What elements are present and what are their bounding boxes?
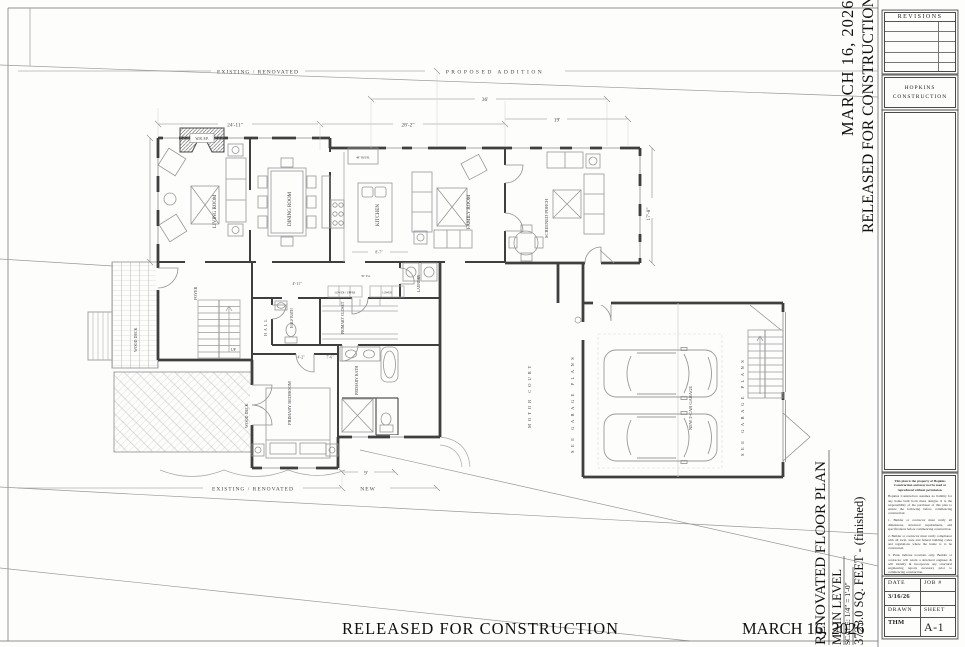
dim-new: 9'	[364, 471, 368, 477]
revisions-title: REVISIONS	[885, 13, 955, 22]
wood-deck-upper	[88, 262, 158, 368]
sheet-label: SHEET	[921, 606, 955, 617]
room-closet: PRIMARY CLOSET	[341, 301, 345, 334]
room-living: LIVING ROOM	[213, 194, 218, 228]
note-paragraph: Hopkins Construction assumes no liabilit…	[888, 494, 952, 515]
zone-new: NEW	[360, 487, 376, 493]
general-notes: This plan is the property of Hopkins Con…	[884, 475, 956, 575]
room-motor-court: MOTOR COURT	[527, 363, 532, 428]
fireplace: W.B. F.P.	[180, 128, 224, 152]
family-room-furniture	[412, 154, 487, 248]
zone-existing-top: EXISTING / RENOVATED	[217, 70, 299, 76]
bath-partitions	[342, 398, 398, 435]
dim-porch-height: 17'-8"	[646, 207, 652, 220]
date-value: 3/16/26	[885, 592, 921, 605]
room-bath: PRIMARY BATH	[354, 366, 359, 395]
note-paragraph: 1. Builder or contractor must verify all…	[888, 518, 952, 531]
sheet-number: A-1	[921, 618, 955, 636]
plan-title-block: RENOVATED FLOOR PLAN MAIN LEVEL SCALE: 1…	[813, 450, 866, 645]
garage-note-right: SEE GARAGE PLANS	[740, 357, 745, 456]
room-foyer: FOYER	[193, 287, 198, 300]
stamp-date-vertical: MARCH 16, 2026	[838, 0, 857, 136]
porch-furniture	[509, 152, 614, 263]
kitchen-fixtures	[331, 148, 392, 262]
fireplace-label: W.B. F.P.	[195, 137, 208, 141]
firm-name-line1: HOPKINS	[905, 84, 936, 92]
room-laundry: LAUNDRY	[417, 274, 421, 292]
room-deck-lower: WOOD DECK	[244, 404, 249, 428]
dim-porch: 19'	[554, 118, 561, 124]
job-value	[921, 592, 955, 605]
drawing-sheet: W.B. F.P.	[0, 0, 965, 647]
room-garage: NEW 2-CAR GARAGE	[688, 386, 693, 430]
bottom-date-stamp: MARCH 16, 2026	[742, 619, 864, 638]
cabinet-label-2: LOWER	[382, 292, 392, 295]
revisions-block: REVISIONS	[884, 12, 956, 72]
revision-row	[885, 32, 955, 42]
date-job-block: DATE JOB # 3/16/26 DRAWN SHEET THM A-1	[884, 578, 956, 637]
bottom-stamps: RELEASED FOR CONSTRUCTION MARCH 16, 2026	[342, 619, 864, 638]
bottom-released-stamp: RELEASED FOR CONSTRUCTION	[342, 619, 619, 638]
job-label: JOB #	[921, 579, 955, 591]
room-family: FAMILY ROOM	[467, 194, 472, 229]
edge-stamps: MARCH 16, 2026 RELEASED FOR CONSTRUCTION	[838, 0, 877, 233]
stairs-up-label: UP	[231, 348, 236, 352]
revision-row	[885, 53, 955, 63]
room-deck-upper: WOOD DECK	[133, 328, 138, 352]
room-hall: HALL	[263, 317, 268, 336]
dim-foyer: 4'-11"	[292, 282, 302, 286]
drawn-label: DRAWN	[885, 606, 921, 617]
firm-stamp: HOPKINS CONSTRUCTION	[884, 77, 956, 108]
closet-shelving	[322, 299, 398, 339]
revisions-column-divider	[938, 22, 939, 71]
room-bedroom: PRIMARY BEDROOM	[287, 381, 292, 425]
dim-cabinet: 30" EA.	[361, 274, 371, 278]
room-half-bath: HALF BATH	[290, 308, 294, 328]
drawn-value: THM	[885, 618, 921, 636]
note-paragraph: This plan is the property of Hopkins Con…	[888, 479, 952, 492]
date-label: DATE	[885, 579, 921, 591]
room-kitchen: KITCHEN	[376, 204, 381, 226]
dining-room-furniture	[258, 158, 330, 246]
zone-proposed: PROPOSED ADDITION	[446, 70, 545, 76]
dim-main: 24'-11"	[227, 123, 243, 129]
dim-hall: 8'-7"	[375, 251, 383, 255]
project-title-box	[884, 112, 956, 470]
dim-addition: 28'-2"	[401, 123, 414, 129]
note-paragraph: 3. Plans indicate locations only. Builde…	[888, 553, 952, 574]
dim-bath-a: 4'-2"	[297, 356, 305, 360]
room-dining: DINING ROOM	[288, 191, 293, 226]
stamp-released-vertical: RELEASED FOR CONSTRUCTION	[860, 0, 877, 233]
note-paragraph: 2. Builder or contractor must verify com…	[888, 534, 952, 551]
bedroom-furniture	[252, 388, 338, 458]
refrigerator-label: 48" REFR.	[356, 156, 370, 160]
cabinet-label-1: LOWER / UPPER	[335, 292, 356, 295]
revision-row	[885, 42, 955, 52]
living-room-furniture	[158, 144, 246, 242]
plan-title-line1: RENOVATED FLOOR PLAN	[813, 461, 829, 645]
zone-existing-bottom: EXISTING / RENOVATED	[212, 487, 294, 493]
room-porch: SCREENED PORCH	[544, 198, 549, 238]
floor-plan-drawing: W.B. F.P.	[0, 0, 965, 647]
dim-bath-b: 7'-6"	[326, 356, 334, 360]
garage-note-left: SEE GARAGE PLANS	[570, 354, 575, 453]
revision-row	[885, 22, 955, 32]
revision-row	[885, 63, 955, 72]
dim-overall: 36'	[482, 97, 489, 103]
firm-name-line2: CONSTRUCTION	[893, 93, 947, 101]
